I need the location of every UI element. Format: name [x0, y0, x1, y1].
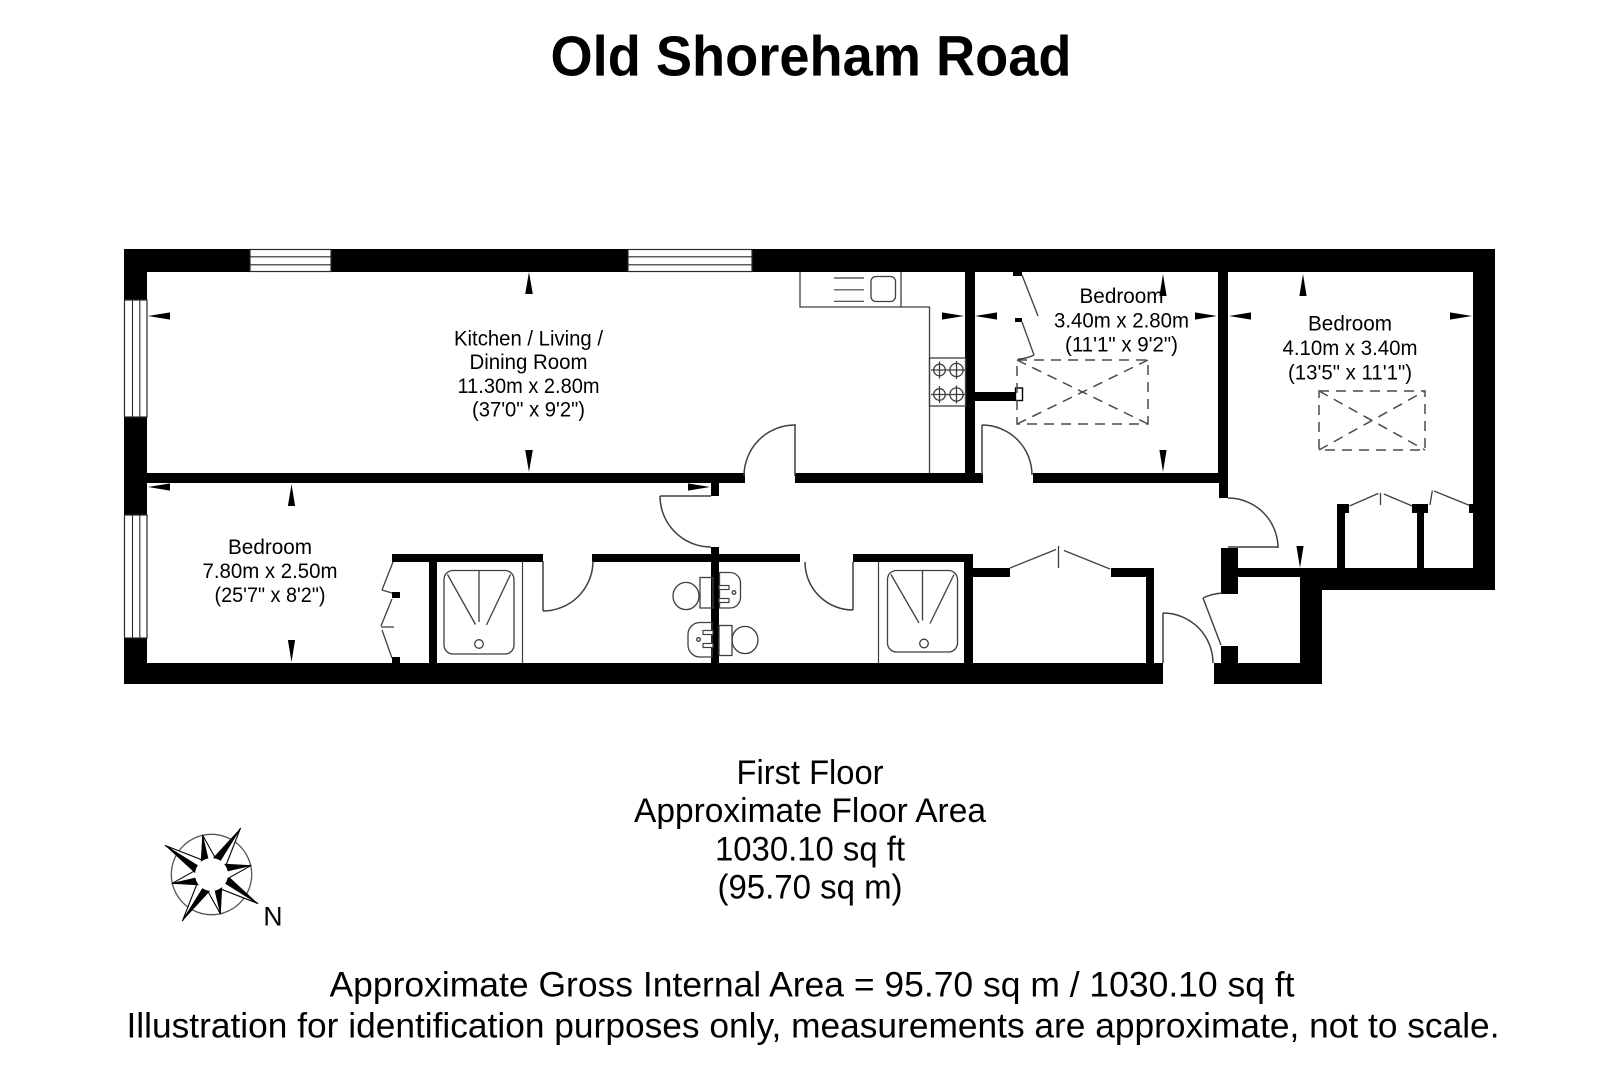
svg-text:1030.10 sq ft: 1030.10 sq ft [715, 830, 906, 868]
svg-text:Bedroom: Bedroom [228, 535, 312, 559]
svg-text:Kitchen / Living /: Kitchen / Living / [454, 327, 603, 351]
svg-text:N: N [263, 901, 282, 931]
svg-text:Old Shoreham Road: Old Shoreham Road [551, 25, 1072, 89]
svg-text:Bedroom: Bedroom [1080, 284, 1164, 308]
svg-text:(13'5" x 11'1"): (13'5" x 11'1") [1288, 361, 1412, 385]
svg-text:Approximate Floor Area: Approximate Floor Area [634, 792, 986, 830]
svg-text:Bedroom: Bedroom [1308, 312, 1392, 336]
svg-text:Illustration for identificatio: Illustration for identification purposes… [127, 1006, 1500, 1045]
svg-text:(11'1" x 9'2"): (11'1" x 9'2") [1065, 333, 1178, 357]
svg-text:Approximate Gross Internal Are: Approximate Gross Internal Area = 95.70 … [330, 965, 1295, 1004]
svg-text:(25'7" x 8'2"): (25'7" x 8'2") [215, 583, 326, 607]
svg-text:(37'0" x 9'2"): (37'0" x 9'2") [472, 398, 585, 422]
svg-text:(95.70 sq m): (95.70 sq m) [718, 869, 903, 907]
svg-text:First Floor: First Floor [737, 754, 884, 792]
svg-text:11.30m x 2.80m: 11.30m x 2.80m [458, 374, 600, 398]
svg-text:Dining Room: Dining Room [470, 350, 588, 374]
svg-text:3.40m x 2.80m: 3.40m x 2.80m [1054, 309, 1189, 333]
svg-text:4.10m x 3.40m: 4.10m x 3.40m [1283, 336, 1418, 360]
svg-text:7.80m x 2.50m: 7.80m x 2.50m [203, 559, 338, 583]
